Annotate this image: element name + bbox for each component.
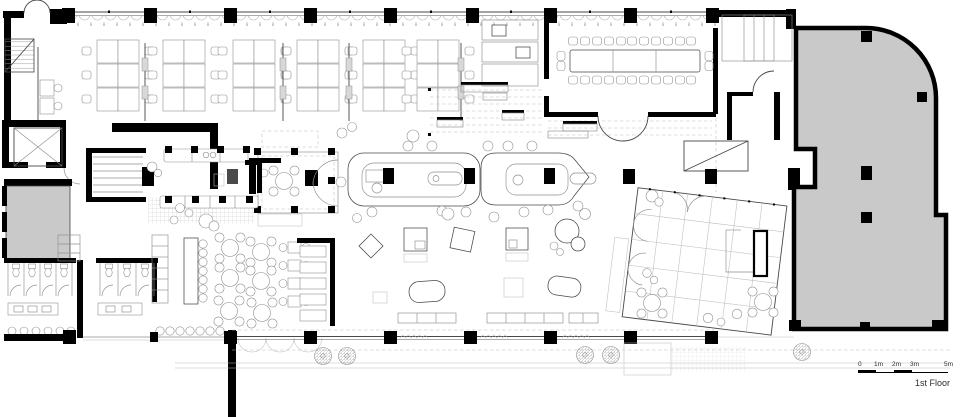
scale-segment [912, 370, 948, 373]
lounge-furniture [373, 219, 598, 323]
entrance-door-arc [24, 0, 37, 13]
scale-label-1m: 1m [874, 361, 883, 368]
tree [603, 347, 620, 364]
conference-table [570, 50, 700, 72]
tree [315, 348, 332, 365]
scale-label-3m: 3m [910, 361, 919, 368]
sink-counter [98, 303, 142, 315]
scale-label-0: 0 [858, 361, 862, 368]
cafe [58, 233, 383, 335]
paving-grid [624, 343, 671, 375]
meeting-pavilion [249, 123, 357, 227]
glass-pavilion [605, 185, 787, 335]
gray-annex [789, 28, 946, 331]
bar-counter [184, 238, 198, 304]
pantry-block [86, 146, 262, 231]
entrance-door-arc [37, 0, 50, 13]
northeast-staircase [722, 15, 792, 61]
island-tables [336, 130, 596, 223]
floor-plan-drawing [0, 0, 960, 417]
tree [794, 344, 811, 361]
south-facade [4, 330, 794, 417]
diamond-table [359, 234, 383, 258]
sink-counter [8, 303, 58, 315]
conference-door-arc [598, 116, 623, 141]
conference-door-arc [623, 116, 648, 141]
floor-plan-canvas: 0 1m 2m 3m 5m 1st Floor [0, 0, 960, 417]
north-facade [62, 8, 796, 29]
structural-columns-south [224, 331, 718, 344]
scale-label-5m: 5m [944, 361, 953, 368]
tree [577, 347, 594, 364]
pavilion-counter [754, 231, 767, 276]
tree [339, 348, 356, 365]
workstation-clusters [82, 40, 474, 121]
restrooms [4, 258, 158, 338]
west-entrance [3, 0, 67, 120]
scale-bar: 0 1m 2m 3m 5m [858, 361, 952, 377]
scale-label-2m: 2m [892, 361, 901, 368]
pavilion-door-arcs [626, 188, 707, 292]
floor-label: 1st Floor [868, 378, 950, 388]
room-door-arc [753, 71, 774, 92]
scale-segment [858, 370, 876, 373]
scale-segment [894, 370, 912, 373]
service-room-gray [6, 186, 70, 260]
paving-grid [671, 346, 746, 372]
scale-segment [876, 370, 894, 373]
